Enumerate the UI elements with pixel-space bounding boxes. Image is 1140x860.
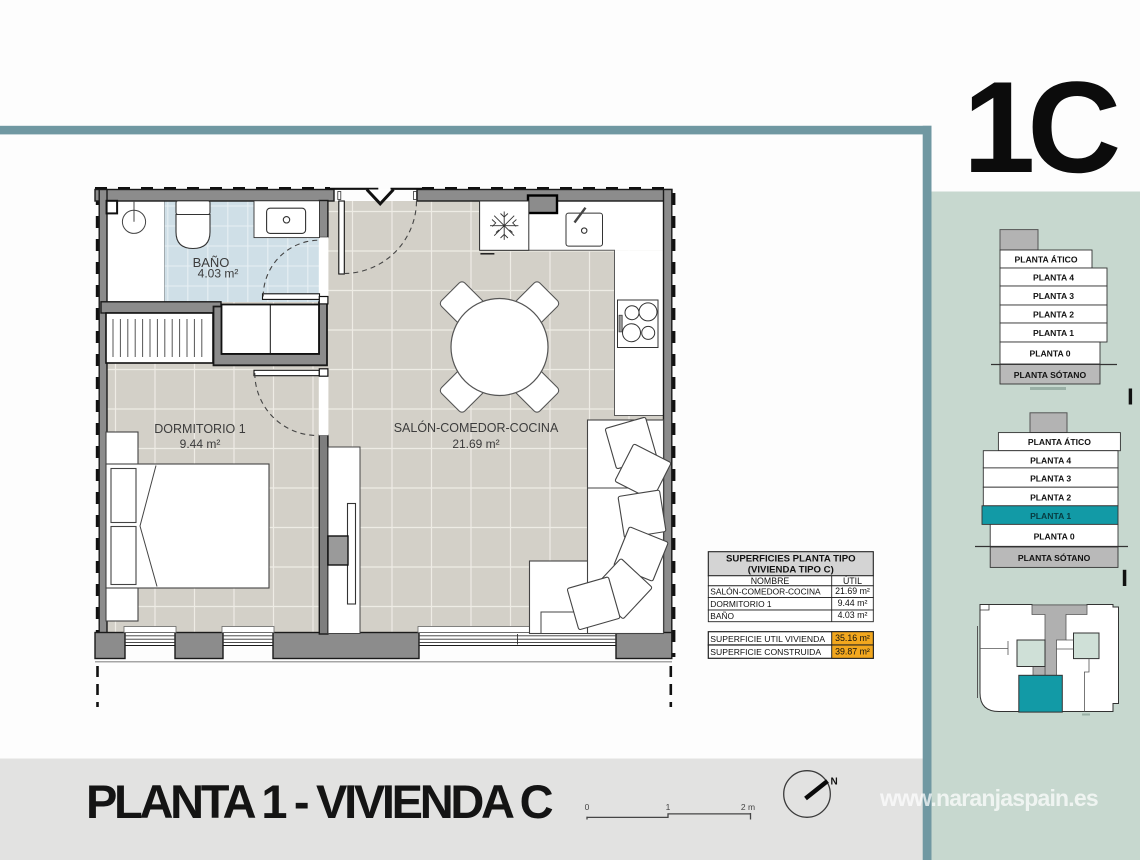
svg-text:PLANTA 2: PLANTA 2 [1033,310,1074,320]
svg-text:21.69 m²: 21.69 m² [835,586,870,596]
svg-text:DORMITORIO 1: DORMITORIO 1 [154,422,245,436]
svg-text:PLANTA 3: PLANTA 3 [1030,474,1071,484]
svg-text:SUPERFICIE UTIL VIVIENDA: SUPERFICIE UTIL VIVIENDA [710,634,825,644]
svg-text:21.69 m²: 21.69 m² [452,437,499,451]
svg-text:0: 0 [585,802,590,812]
svg-text:PLANTA ÁTICO: PLANTA ÁTICO [1014,255,1077,265]
svg-text:ÚTIL: ÚTIL [843,576,862,586]
svg-text:PLANTA SÓTANO: PLANTA SÓTANO [1014,369,1087,380]
svg-text:PLANTA 4: PLANTA 4 [1030,455,1071,465]
svg-text:PLANTA 3: PLANTA 3 [1033,291,1074,301]
svg-text:N: N [831,777,838,788]
svg-text:NOMBRE: NOMBRE [751,576,790,586]
svg-text:35.16 m²: 35.16 m² [835,633,870,643]
svg-text:PLANTA 2: PLANTA 2 [1030,493,1071,503]
svg-text:9.44 m²: 9.44 m² [180,437,221,451]
svg-text:PLANTA 1 - VIVIENDA C: PLANTA 1 - VIVIENDA C [86,775,553,828]
svg-text:PLANTA 1: PLANTA 1 [1033,328,1074,338]
svg-text:2 m: 2 m [741,802,755,812]
svg-text:SUPERFICIE CONSTRUIDA: SUPERFICIE CONSTRUIDA [710,647,821,657]
svg-text:1: 1 [666,802,671,812]
svg-text:DORMITORIO 1: DORMITORIO 1 [710,599,772,609]
svg-text:4.03 m²: 4.03 m² [838,610,868,620]
svg-text:SUPERFICIES PLANTA TIPO: SUPERFICIES PLANTA TIPO [726,554,856,565]
svg-text:PLANTA 4: PLANTA 4 [1033,273,1074,283]
svg-text:(VIVIENDA TIPO C): (VIVIENDA TIPO C) [748,565,834,576]
svg-text:www.naranjaspain.es: www.naranjaspain.es [879,785,1098,811]
svg-text:9.44 m²: 9.44 m² [838,598,868,608]
svg-text:PLANTA 1: PLANTA 1 [1030,511,1071,521]
svg-text:PLANTA ÁTICO: PLANTA ÁTICO [1028,437,1091,447]
svg-text:PLANTA 0: PLANTA 0 [1029,349,1070,359]
svg-text:4.03 m²: 4.03 m² [198,267,239,281]
svg-text:39.87 m²: 39.87 m² [835,646,870,656]
svg-text:SALÓN-COMEDOR-COCINA: SALÓN-COMEDOR-COCINA [710,587,821,597]
svg-text:1C: 1C [963,54,1118,200]
svg-text:BAÑO: BAÑO [710,611,734,621]
svg-text:PLANTA SÓTANO: PLANTA SÓTANO [1018,552,1091,563]
svg-text:SALÓN-COMEDOR-COCINA: SALÓN-COMEDOR-COCINA [394,420,559,435]
svg-text:PLANTA 0: PLANTA 0 [1034,532,1075,542]
